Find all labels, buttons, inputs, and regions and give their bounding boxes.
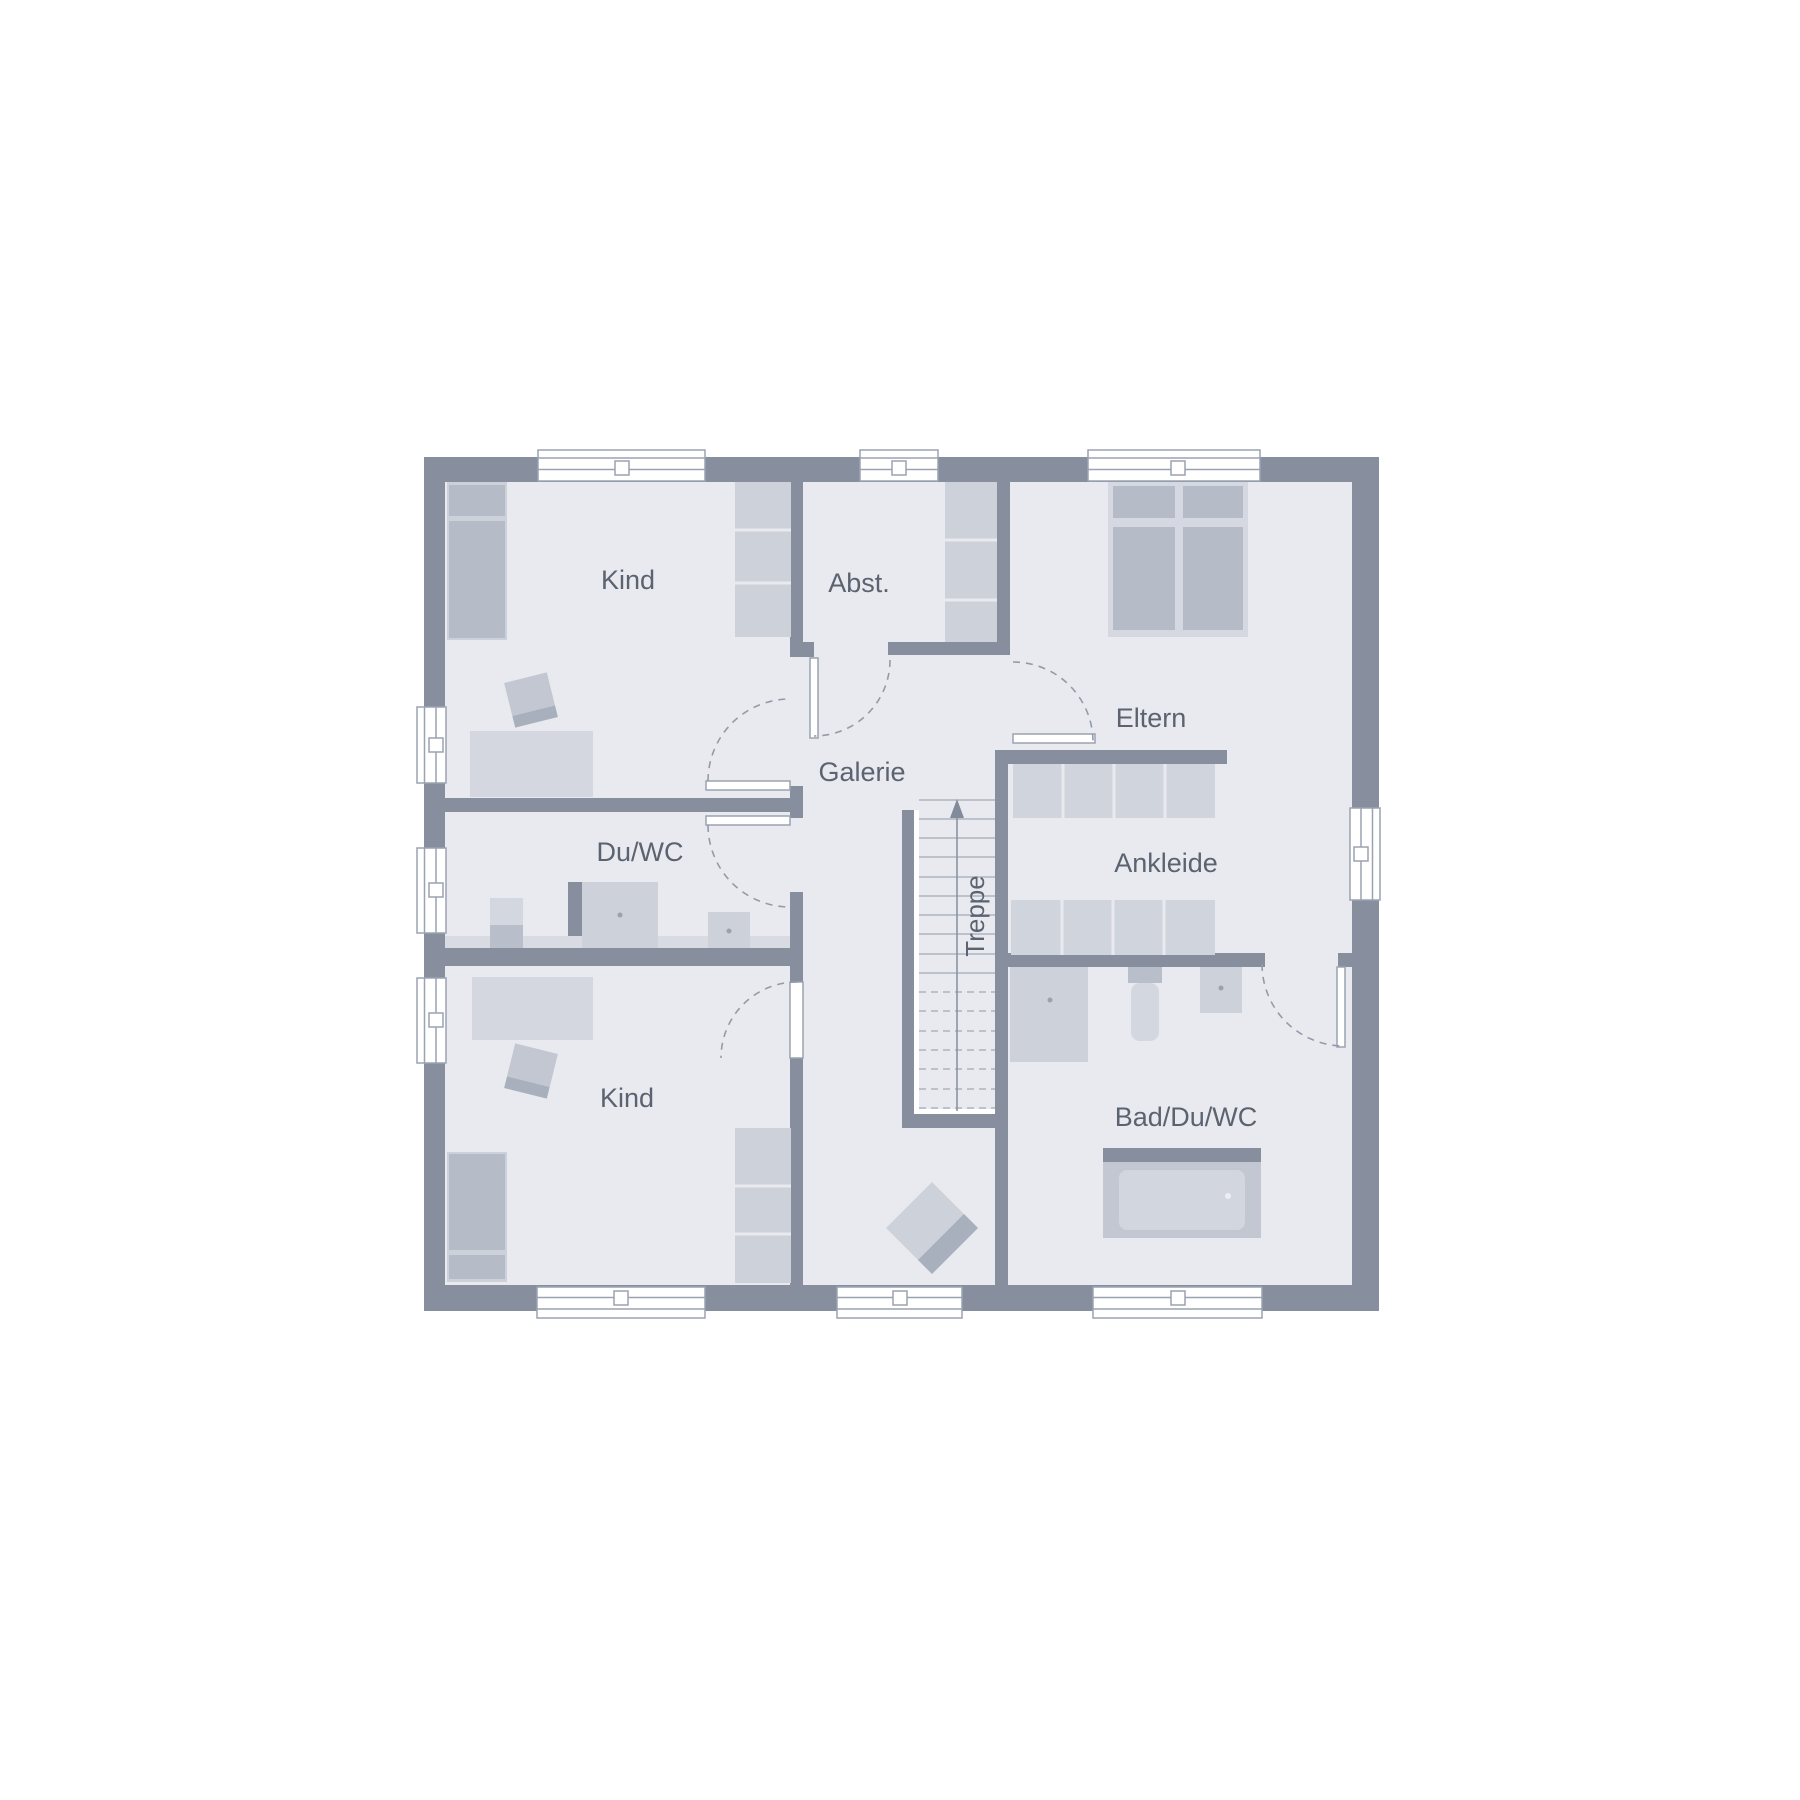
label-eltern: Eltern — [1116, 703, 1187, 733]
washbasin — [1200, 967, 1242, 1013]
shower — [1010, 967, 1088, 1062]
double-bed — [1108, 482, 1248, 637]
label-kind-top: Kind — [601, 565, 655, 595]
label-duwc: Du/WC — [597, 837, 684, 867]
bed — [447, 482, 507, 640]
room-abst-furniture — [945, 482, 997, 642]
floor-plan-page: Kind Abst. Eltern Galerie Du/WC Ankleide… — [0, 0, 1800, 1800]
window-bottom-bad — [1093, 1287, 1262, 1318]
window-top-abst — [860, 450, 938, 481]
wardrobe — [735, 482, 791, 637]
toilet — [490, 898, 523, 948]
toilet — [1128, 967, 1162, 1041]
shower — [582, 882, 658, 948]
desk — [472, 977, 593, 1040]
window-left-duwc — [417, 848, 446, 933]
window-left-kind-bottom — [417, 978, 446, 1063]
window-bottom-galerie — [837, 1287, 962, 1318]
label-abst: Abst. — [828, 568, 890, 598]
window-left-kind-top — [417, 707, 446, 783]
wardrobe — [945, 482, 997, 642]
floor-plan-drawing: Kind Abst. Eltern Galerie Du/WC Ankleide… — [0, 0, 1800, 1800]
window-bottom-kind — [537, 1287, 705, 1318]
window-top-eltern — [1088, 450, 1260, 481]
label-kind-bottom: Kind — [600, 1083, 654, 1113]
label-ankleide: Ankleide — [1114, 848, 1218, 878]
wardrobe-row-bottom — [1011, 900, 1215, 955]
wardrobe-row-top — [1013, 764, 1215, 818]
label-treppe: Treppe — [960, 875, 990, 956]
bathtub — [1103, 1148, 1261, 1238]
window-top-kind — [538, 450, 705, 481]
bed — [447, 1152, 507, 1282]
desk — [470, 731, 593, 797]
label-bad-duwc: Bad/Du/WC — [1115, 1102, 1258, 1132]
label-galerie: Galerie — [818, 757, 905, 787]
wardrobe — [735, 1128, 791, 1283]
washbasin — [708, 912, 750, 948]
room-eltern-furniture — [1108, 482, 1248, 637]
window-right-ankleide — [1350, 808, 1380, 900]
